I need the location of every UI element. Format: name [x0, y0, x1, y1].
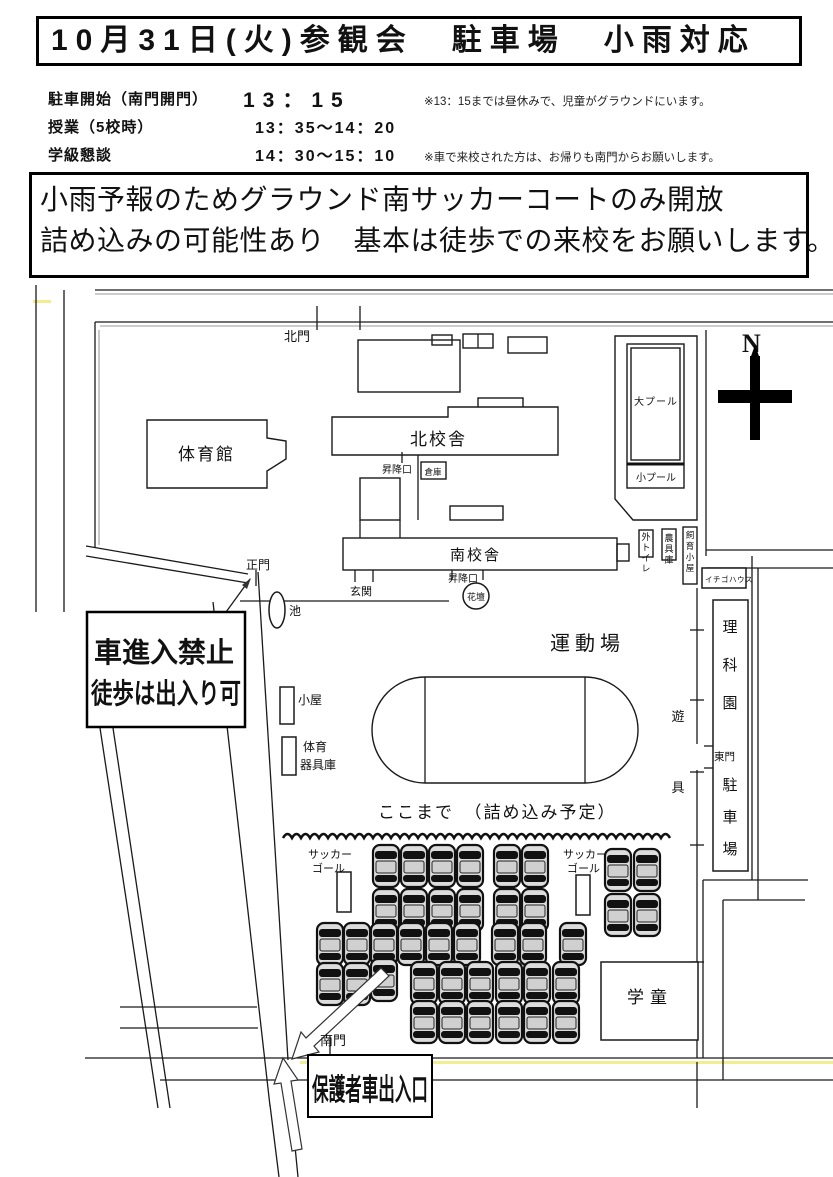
car-icon [317, 963, 343, 1005]
entrance-south-label: 昇降口 [448, 572, 478, 585]
entry-arrow [274, 1058, 302, 1151]
running-track [372, 677, 638, 783]
soccer-goal-left-label2: ゴール [312, 861, 345, 875]
car-icon [605, 894, 631, 936]
school-map: 車進入禁止 徒歩は出入り可 保護者車出入口 N 北門 体育館 北校舎 昇降口 倉… [0, 282, 833, 1177]
car-icon [344, 923, 370, 965]
south-building-label: 南校舎 [450, 547, 501, 564]
car-icon [429, 845, 455, 887]
soccer-goal-right [576, 875, 590, 915]
fill-limit-label: ここまで （詰め込み予定） [378, 803, 617, 822]
car-icon [522, 845, 548, 887]
strawberry-house-label: イチゴハウス [705, 574, 753, 584]
car-icon [454, 923, 480, 965]
sports-ground-label: 運動場 [550, 632, 625, 655]
car-icon [560, 923, 586, 965]
schedule-time-class: 13：35～14：20 [255, 114, 396, 138]
pond-label: 池 [289, 604, 301, 618]
animal-hut-label: 飼育小屋 [686, 530, 695, 573]
car-icon [401, 845, 427, 887]
car-icon [457, 845, 483, 887]
north-gate-label: 北門 [284, 329, 310, 344]
car-icon [467, 962, 493, 1004]
hut-label: 小屋 [298, 693, 322, 707]
car-icon [494, 845, 520, 887]
pond-shape [269, 592, 285, 628]
schedule-label-class: 授業（5校時） [48, 116, 153, 137]
schedule-time-meeting: 14：30～15：10 [255, 142, 396, 166]
pool-area [615, 336, 697, 520]
hut-box [280, 687, 294, 724]
outdoor-toilet-label: 外トイレ [641, 531, 650, 574]
soccer-goal-left [337, 872, 351, 912]
tool-shed-label: 農具庫 [664, 532, 673, 565]
schedule-label-meeting: 学級懇談 [48, 144, 112, 165]
large-pool-label: 大プール [634, 395, 678, 408]
car-icon [520, 923, 546, 965]
schedule-note-lunch: ※13：15までは昼休みで、児童がグラウンドにいます。 [424, 93, 711, 109]
science-garden-label: 理科園 [722, 619, 737, 712]
car-icon [492, 923, 518, 965]
car-icon [553, 1001, 579, 1043]
car-icon [411, 1001, 437, 1043]
car-icon [439, 962, 465, 1004]
flower-bed-label: 花壇 [467, 591, 485, 602]
east-parking-label: 駐車場 [722, 777, 737, 858]
schedule-label-parking: 駐車開始（南門開門） [48, 88, 208, 109]
parent-gate-label: 保護者車出入口 [312, 1073, 428, 1107]
pe-storage-box [282, 737, 296, 775]
main-gate-label: 正門 [246, 558, 270, 572]
car-icon [373, 845, 399, 887]
compass-label: N [742, 329, 761, 358]
gym-label: 体育館 [178, 445, 235, 464]
storeroom-label: 倉庫 [424, 467, 442, 477]
compass: N [718, 329, 792, 440]
rain-notice-box: 小雨予報のためグラウンド南サッカーコートのみ開放 詰め込みの可能性あり 基本は徒… [29, 172, 809, 278]
entrance-hall-label: 玄関 [350, 584, 372, 598]
rain-notice-line2: 詰め込みの可能性あり 基本は徒歩での来校をお願いします。 [40, 220, 798, 261]
rain-notice-line1: 小雨予報のためグラウンド南サッカーコートのみ開放 [40, 179, 798, 220]
no-entry-line2: 徒歩は出入り可 [90, 678, 241, 709]
parking-notice-page: 10月31日(火)参観会 駐車場 小雨対応 駐車開始（南門開門） 13：15 ※… [0, 0, 833, 1177]
small-pool-label: 小プール [636, 472, 676, 484]
no-entry-line1: 車進入禁止 [94, 637, 234, 668]
soccer-goal-right-label2: ゴール [567, 861, 600, 875]
science-garden-parking-box [713, 600, 748, 871]
car-icon [496, 962, 522, 1004]
soccer-goal-left-label1: サッカー [308, 848, 352, 861]
car-icon [634, 849, 660, 891]
car-icon [634, 894, 660, 936]
car-icon [411, 962, 437, 1004]
car-icon [496, 1001, 522, 1043]
car-icon [524, 962, 550, 1004]
playground-equipment-label: 遊具 [671, 709, 684, 795]
entrance-north-label: 昇降口 [382, 463, 412, 476]
no-entry-sign: 車進入禁止 徒歩は出入り可 [87, 612, 245, 727]
car-icon [398, 923, 424, 965]
fill-limit-wavy-line [283, 834, 670, 838]
car-icon [467, 1001, 493, 1043]
car-icon [426, 923, 452, 965]
schedule-note-return: ※車で来校された方は、お帰りも南門からお願いします。 [424, 149, 720, 165]
north-building-label: 北校舎 [410, 430, 467, 449]
page-title: 10月31日(火)参観会 駐車場 小雨対応 [36, 16, 802, 66]
car-icon [439, 1001, 465, 1043]
parent-gate-sign: 保護者車出入口 [308, 1055, 432, 1117]
car-icon [553, 962, 579, 1004]
pe-storage-label2: 器具庫 [300, 758, 336, 772]
car-icon [605, 849, 631, 891]
east-gate-label: 東門 [714, 750, 735, 763]
car-icon [524, 1001, 550, 1043]
car-icon [317, 923, 343, 965]
soccer-goal-right-label1: サッカー [563, 848, 607, 861]
pe-storage-label1: 体育 [303, 739, 327, 754]
south-gate-label: 南門 [320, 1033, 346, 1048]
schedule-time-parking: 13：15 [243, 84, 351, 114]
afterschool-label: 学童 [627, 988, 673, 1007]
